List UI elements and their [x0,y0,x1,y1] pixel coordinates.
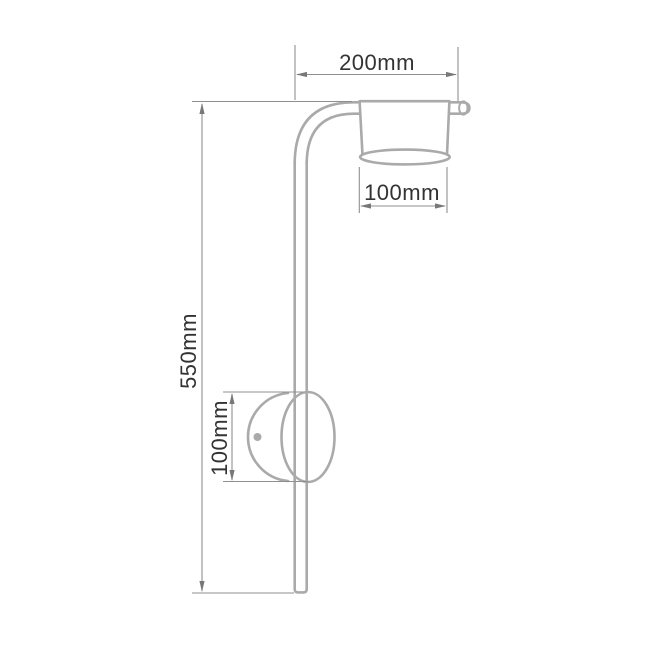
lamp-fixture [248,101,469,592]
mount-screw-hole [254,433,262,441]
arrowhead-up [199,103,204,114]
lamp-pole [295,161,307,592]
dimension-label-shade-diameter: 100mm [364,182,440,204]
dimension-label-pole-height: 550mm [178,313,200,389]
dimension-pole-height [192,102,352,594]
arrowhead-down [199,581,204,592]
arrowhead-left [296,72,307,77]
arrowhead-right [446,72,457,77]
lamp-diagram-canvas [0,0,650,650]
dimension-label-mount-height: 100mm [209,400,231,476]
lamp-shade [360,101,450,164]
wall-mount [248,392,334,482]
technical-drawing: 200mm 550mm 100mm 100mm [0,0,650,650]
lamp-shade-rim [360,150,450,165]
dimension-label-arm-length: 200mm [339,52,415,74]
